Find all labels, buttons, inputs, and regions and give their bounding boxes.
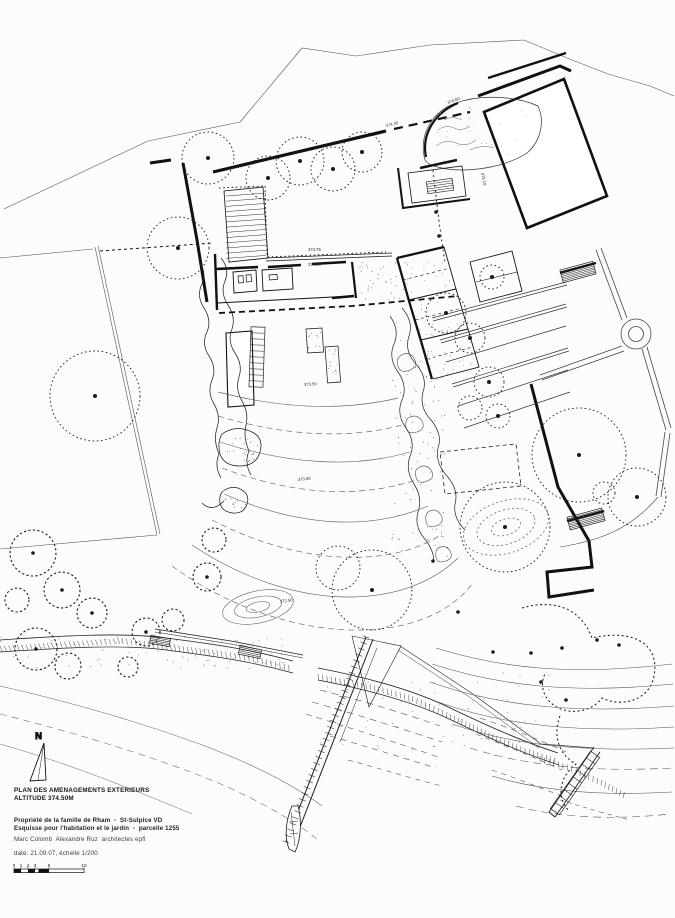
parcel-southwest-line (0, 535, 157, 549)
stipple-dot (1, 637, 2, 638)
stipple-dot (412, 401, 413, 402)
stipple-dot (204, 665, 205, 666)
stipple-dot (383, 698, 384, 699)
tree-trunk-dot (577, 453, 581, 457)
stipple-dot (415, 367, 416, 368)
stipple-dot (455, 116, 456, 117)
tree-trunk-dot (635, 495, 639, 499)
stipple-dot (441, 377, 442, 378)
stipple-dot (342, 744, 343, 745)
stipple-dot (146, 652, 147, 653)
stipple-dot (207, 660, 208, 661)
bed-hatch-line (226, 240, 266, 243)
boundary-seg (150, 160, 171, 163)
stipple-dot (447, 373, 448, 374)
stipple-dot (432, 324, 433, 325)
stipple-dot (437, 379, 438, 380)
stipple-dot (395, 386, 396, 387)
stipple-dot (452, 741, 453, 742)
stipple-dot (430, 432, 431, 433)
stipple-dot (522, 110, 523, 111)
riprap-tick (266, 659, 267, 665)
spot-elevation: 375.10 (480, 172, 488, 186)
riprap-tick (466, 721, 467, 727)
bush-trunk-dot (60, 588, 64, 592)
stipple-dot (451, 685, 452, 686)
terrain-wave (516, 806, 670, 817)
stipple-dot (439, 705, 440, 706)
spot-elevation-labels: 374.75374.50373.50373.00372.50374.45374.… (279, 96, 487, 604)
stipple-dot (225, 498, 226, 499)
stipple-dot (470, 131, 471, 132)
scale-bar-tick-label: 3 (34, 863, 37, 868)
boundary-seg (531, 384, 594, 597)
stipple-dot (232, 443, 233, 444)
stipple-dot (245, 454, 246, 455)
stipple-dot (265, 663, 266, 664)
stipple-dot (367, 267, 368, 268)
bush-trunk-dot (34, 647, 38, 651)
stipple-dot (470, 371, 471, 372)
stipple-dot (428, 325, 429, 326)
stipple-dot (336, 371, 337, 372)
riprap-tick (95, 640, 97, 646)
boundary-seg (488, 53, 566, 78)
stipple-dot (330, 362, 331, 363)
stipple-dot (453, 369, 454, 370)
riprap-tick (438, 708, 439, 714)
stipple-dot (440, 113, 441, 114)
stipple-dot (16, 638, 17, 639)
stipple-dot (253, 453, 254, 454)
stipple-dot (407, 265, 408, 266)
stipple-dot (335, 678, 336, 679)
house-wall (216, 262, 346, 269)
stipple-dot (377, 745, 378, 746)
entry-court-outline (408, 166, 466, 203)
stipple-dot (481, 738, 482, 739)
stipple-dot (105, 639, 106, 640)
stipple-dot (542, 697, 543, 698)
riprap-tick (26, 644, 28, 650)
stipple-dot (449, 163, 450, 164)
stipple-dot (501, 146, 502, 147)
entry-steps (426, 178, 453, 194)
stipple-dot (129, 652, 130, 653)
stipple-dot (281, 662, 282, 663)
stipple-dot (368, 682, 369, 683)
boundary-seg (560, 263, 596, 273)
stipple-dot (214, 653, 215, 654)
scanned-site-plan-sheet: 374.75374.50373.50373.00372.50374.45374.… (0, 0, 675, 918)
stipple-dot (282, 668, 283, 669)
vegetation (5, 132, 666, 702)
trunk-dot (491, 650, 495, 654)
riprap-tick (322, 675, 323, 681)
stipple-dot (483, 699, 484, 700)
stipple-dot (414, 388, 415, 389)
spot-elevation: 372.50 (279, 597, 293, 604)
stipple-dot (255, 662, 256, 663)
stipple-dot (391, 282, 392, 283)
riprap-tick (122, 638, 123, 644)
stipple-dot (411, 268, 412, 269)
trunk-dot (539, 680, 543, 684)
stipple-dot (243, 509, 244, 510)
stipple-dot (441, 532, 442, 533)
house-wall (332, 296, 354, 298)
stipple-dot (233, 450, 234, 451)
scale-bar-fill (14, 869, 21, 873)
stipple-dot (409, 278, 410, 279)
stipple-dot (101, 665, 102, 666)
stipple-dot (413, 489, 414, 490)
beach-arc (0, 744, 192, 814)
stipple-dot (253, 643, 254, 644)
stipple-dot (441, 331, 442, 332)
bed-hatch-line (226, 203, 266, 206)
stipple-dot (535, 720, 536, 721)
stipple-dot (486, 143, 487, 144)
platform-dotted-outline (219, 186, 386, 257)
stipple-dot (470, 109, 471, 110)
stipple-dot (427, 262, 428, 263)
stipple-dot (491, 145, 492, 146)
riprap-tick (421, 700, 422, 706)
stipple-dot (182, 657, 183, 658)
main-pier-rail (293, 639, 373, 845)
stipple-dot (308, 336, 309, 337)
stipple-dot (525, 115, 526, 116)
stipple-dot (447, 556, 448, 557)
shore-wall (155, 632, 303, 658)
scale-bar: 0123510 (13, 863, 87, 873)
contour (212, 520, 442, 557)
riprap-tick (620, 790, 621, 796)
riprap-tick (230, 652, 231, 658)
stipple-dot (458, 145, 459, 146)
riprap-tick (153, 642, 154, 648)
stipple-dot (196, 657, 197, 658)
stipple-dot (443, 484, 444, 485)
stipple-dot (335, 370, 336, 371)
riprap-tick (179, 646, 180, 652)
riprap-tick (454, 716, 455, 722)
stipple-dot (22, 645, 23, 646)
stipple-dot (427, 310, 428, 311)
trunk-dot (564, 698, 568, 702)
stipple-dot (279, 659, 280, 660)
stipple-dot (432, 529, 433, 530)
riprap-tick (318, 674, 319, 680)
stipple-dot (507, 712, 508, 713)
stipple-dot (450, 333, 451, 334)
stipple-dot (503, 743, 504, 744)
stipple-dot (406, 374, 407, 375)
stipple-dot (425, 697, 426, 698)
stipple-dot (443, 369, 444, 370)
boundary-seg (213, 131, 386, 172)
lawn-dashed-rect (440, 444, 521, 494)
stipple-dot (242, 650, 243, 651)
stipple-dot (333, 372, 334, 373)
stipple-dot (464, 745, 465, 746)
spot-elevation: 373.50 (304, 381, 318, 387)
site-plan-drawing: 374.75374.50373.50373.00372.50374.45374.… (0, 0, 675, 918)
tree-trunk-dot (370, 588, 374, 592)
stipple-dot (432, 335, 433, 336)
stipple-dot (520, 730, 521, 731)
stipple-dot (405, 417, 406, 418)
riprap-tick (462, 719, 463, 725)
stipple-dot (235, 640, 236, 641)
riprap-tick (100, 639, 102, 645)
stipple-dot (420, 689, 421, 690)
stipple-dot (403, 455, 404, 456)
stipple-dot (428, 354, 429, 355)
stipple-dot (167, 660, 168, 661)
stipple-dot (282, 645, 283, 646)
riprap-tick (612, 786, 613, 792)
stipple-dot (434, 421, 435, 422)
scale-bar-fill (39, 869, 50, 873)
stipple-dot (493, 736, 494, 737)
small-pier-deck (550, 751, 599, 815)
stipple-dot (425, 705, 426, 706)
terrace-edge (266, 253, 392, 261)
riprap-tick (571, 766, 572, 772)
stipple-dot (202, 650, 203, 651)
stipple-dot (411, 682, 412, 683)
water-dash (330, 736, 436, 768)
riprap-tick (450, 714, 451, 720)
stipple-dot (394, 297, 395, 298)
stipple-dot (316, 335, 317, 336)
stipple-dot (102, 650, 103, 651)
stipple-dot (227, 667, 228, 668)
stipple-dot (348, 676, 349, 677)
stipple-dot (244, 443, 245, 444)
stipple-dot (195, 655, 196, 656)
stipple-dot (396, 726, 397, 727)
stipple-dot (445, 113, 446, 114)
riprap-tick (253, 656, 254, 662)
riprap-tick (175, 645, 176, 651)
context-upper-boundary (240, 40, 674, 122)
stipple-dot (249, 460, 250, 461)
stipple-dot (229, 661, 230, 662)
tree-trunk-dot (490, 275, 494, 279)
riprap-tick (597, 778, 598, 784)
riprap-tick (221, 651, 222, 657)
stipple-dot (320, 743, 321, 744)
stipple-dot (258, 640, 259, 641)
stipple-dot (428, 351, 429, 352)
stipple-dot (367, 720, 368, 721)
stipple-dot (97, 659, 98, 660)
stipple-dot (250, 442, 251, 443)
stipple-dot (477, 682, 478, 683)
hedge-west-edge (199, 262, 221, 478)
stipple-dot (411, 468, 412, 469)
stipple-dot (426, 376, 427, 377)
wetland-texture (436, 118, 494, 151)
water-dash (306, 714, 438, 757)
stipple-dot (405, 263, 406, 264)
riprap-tick (331, 677, 332, 683)
water-dashes (306, 690, 630, 820)
riprap-tick (417, 698, 418, 704)
stipple-dot (520, 675, 521, 676)
stipple-dot (335, 734, 336, 735)
stipple-dot (180, 667, 181, 668)
riprap-tick (366, 683, 367, 689)
context-shore-road-line (4, 122, 240, 209)
riprap-tick (91, 640, 93, 646)
stipple-dot (398, 301, 399, 302)
stipple-dot (239, 655, 240, 656)
stipple-dot (233, 658, 234, 659)
riprap-tick (429, 704, 430, 710)
stipple-dot (392, 380, 393, 381)
stipple-dot (425, 295, 426, 296)
stipple-dot (329, 691, 330, 692)
stipple-dot (158, 651, 159, 652)
stipple-dot (335, 351, 336, 352)
stipple-dot (441, 453, 442, 454)
stipple-dot (508, 154, 509, 155)
stipple-dot (173, 661, 174, 662)
stipple-dot (428, 458, 429, 459)
trunk-dot (434, 210, 438, 214)
stipple-dot (432, 355, 433, 356)
stipple-dot (424, 269, 425, 270)
riprap-tick (289, 665, 290, 671)
stipple-dot (444, 453, 445, 454)
stipple-dot (27, 657, 28, 658)
stipple-dot (316, 346, 317, 347)
riprap-tick (113, 639, 115, 645)
riprap-tick (109, 639, 111, 645)
riprap-tick (64, 642, 66, 648)
riprap-tick (458, 718, 459, 724)
stipple-dot (467, 126, 468, 127)
stipple-dot (409, 701, 410, 702)
stipple-dot (235, 502, 236, 503)
stipple-dot (99, 658, 100, 659)
stipple-dot (399, 539, 400, 540)
bush-trunk-dot (205, 575, 209, 579)
stipple-dot (392, 539, 393, 540)
stipple-dot (396, 286, 397, 287)
stipple-dot (388, 299, 389, 300)
stipple-dot (184, 637, 185, 638)
stipple-dot (239, 644, 240, 645)
stipple-dot (412, 422, 413, 423)
riprap-tick (43, 643, 45, 649)
stipple-dot (421, 305, 422, 306)
stipple-dot (362, 262, 363, 263)
stipple-dot (459, 361, 460, 362)
riprap-tick (17, 645, 19, 651)
stipple-dot (36, 667, 37, 668)
riprap-tick (521, 746, 522, 752)
stipple-dot (445, 352, 446, 353)
bed-hatch-line (226, 193, 266, 196)
spot-elevation: 374.75 (308, 247, 321, 252)
stipple-dot (424, 280, 425, 281)
stipple-dot (495, 755, 496, 756)
bed-hatch-line (226, 250, 266, 253)
stipple-dot (427, 443, 428, 444)
riprap-tick (623, 792, 624, 798)
stipple-dot (141, 644, 142, 645)
stipple-dot (420, 361, 421, 362)
riprap-tick (51, 643, 53, 649)
scale-bar-tick-label: 5 (48, 863, 51, 868)
stipple-dot (395, 276, 396, 277)
stipple-dot (399, 484, 400, 485)
stipple-dot (496, 699, 497, 700)
stipple-dot (507, 699, 508, 700)
stipple-dot (444, 160, 445, 161)
stipple-dot (337, 380, 338, 381)
bed-hatch-line (226, 209, 266, 212)
shore-connector (398, 650, 539, 748)
riprap-tick (434, 706, 435, 712)
stipple-dot (435, 545, 436, 546)
stipple-dot (240, 448, 241, 449)
bush-trunk-dot (31, 551, 35, 555)
scale-bar-tick-label: 0 (13, 863, 16, 868)
bush-canopy (5, 588, 29, 612)
stipple-dot (398, 515, 399, 516)
stipple-dot (214, 666, 215, 667)
riprap-tick (162, 643, 163, 649)
stipple-dot (328, 368, 329, 369)
stipple-dot (366, 727, 367, 728)
stipple-dot (399, 298, 400, 299)
contour (192, 545, 458, 597)
plan-title-line1: PLAN DES AMENAGEMENTS EXTERIEURS (14, 787, 149, 794)
stipple-dot (424, 266, 425, 267)
stipple-dot (524, 721, 525, 722)
bush-trunk-dot (90, 611, 94, 615)
stipple-dot (329, 350, 330, 351)
stipple-dot (410, 499, 411, 500)
stipple-dot (514, 728, 515, 729)
trunk-dot (529, 651, 533, 655)
stipple-dot (237, 640, 238, 641)
stipple-dot (519, 742, 520, 743)
contours (0, 392, 556, 840)
spot-elevation: 374.45 (385, 120, 399, 128)
mound-contour (232, 592, 283, 622)
stipple-dot (427, 334, 428, 335)
stipple-dot (246, 451, 247, 452)
stipple-dot (58, 638, 59, 639)
stipple-dot (412, 533, 413, 534)
stipple-dot (378, 747, 379, 748)
stipple-dot (443, 736, 444, 737)
terrain-wave (430, 682, 674, 709)
contour (222, 468, 416, 492)
riprap-tick (196, 648, 197, 654)
riprap-tick (473, 725, 474, 731)
stipple-dot (434, 746, 435, 747)
stipple-dot (419, 453, 420, 454)
riprap-tick (4, 646, 6, 652)
